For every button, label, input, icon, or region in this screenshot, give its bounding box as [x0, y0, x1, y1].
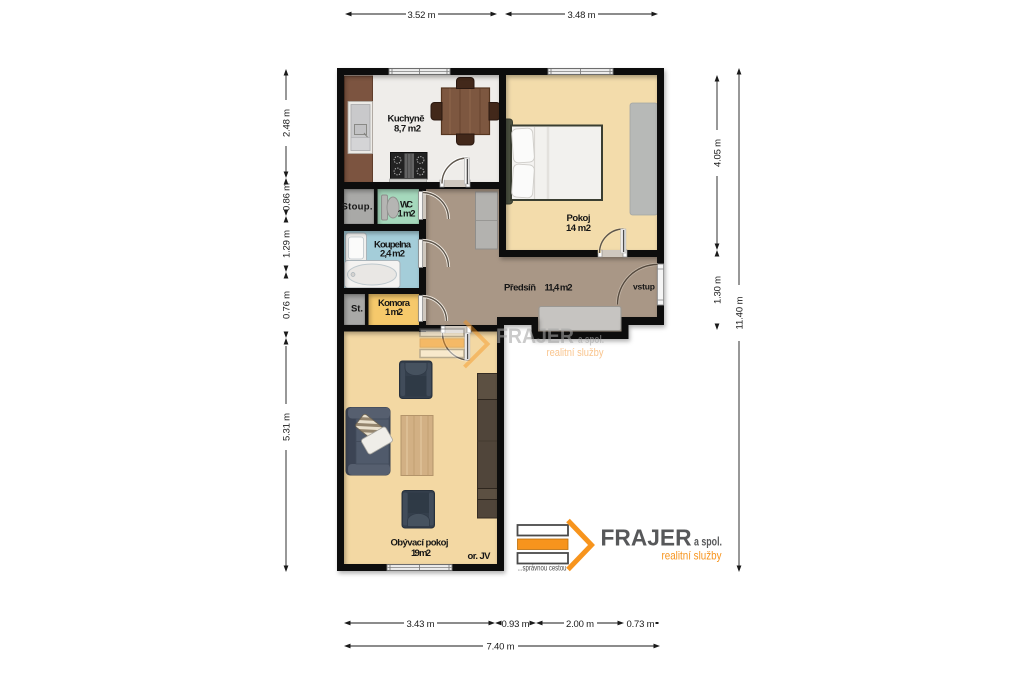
- svg-text:14 m2: 14 m2: [566, 223, 591, 234]
- svg-text:or. JV: or. JV: [468, 551, 492, 562]
- svg-text:8,7 m2: 8,7 m2: [394, 124, 421, 135]
- svg-text:Obývací pokoj: Obývací pokoj: [391, 538, 449, 549]
- svg-text:realitní služby: realitní služby: [547, 347, 604, 359]
- svg-text:0.93 m: 0.93 m: [502, 619, 530, 630]
- svg-text:1 m2: 1 m2: [398, 209, 416, 220]
- svg-text:vstup: vstup: [633, 282, 655, 292]
- svg-text:1.29 m: 1.29 m: [282, 230, 293, 258]
- svg-text:19 m2: 19 m2: [411, 548, 431, 559]
- svg-text:1 m2: 1 m2: [385, 307, 403, 318]
- svg-text:FRAJER: FRAJER: [496, 325, 574, 348]
- svg-text:11.40 m: 11.40 m: [735, 296, 746, 329]
- svg-text:3.48 m: 3.48 m: [568, 10, 596, 21]
- svg-text:St.: St.: [351, 304, 363, 315]
- svg-text:FRAJER: FRAJER: [601, 525, 692, 551]
- svg-text:Předsíň: Předsíň: [504, 283, 536, 294]
- svg-text:0.76 m: 0.76 m: [282, 291, 293, 319]
- svg-text:5.31 m: 5.31 m: [282, 413, 293, 441]
- svg-text:7.40 m: 7.40 m: [487, 642, 515, 653]
- svg-text:0.86 m: 0.86 m: [282, 183, 293, 211]
- svg-text:3.43 m: 3.43 m: [407, 619, 435, 630]
- svg-text:a spol.: a spol.: [578, 334, 604, 346]
- svg-text:0.73 m: 0.73 m: [627, 619, 655, 630]
- svg-text:realitní služby: realitní služby: [662, 549, 722, 563]
- svg-text:3.52 m: 3.52 m: [408, 10, 436, 21]
- svg-text:2.00 m: 2.00 m: [566, 619, 594, 630]
- svg-text:Stoup.: Stoup.: [342, 202, 373, 213]
- svg-text:11,4 m2: 11,4 m2: [545, 283, 573, 294]
- svg-text:2,4 m2: 2,4 m2: [380, 249, 405, 260]
- svg-text:4.05 m: 4.05 m: [713, 139, 724, 167]
- svg-text:a spol.: a spol.: [694, 535, 722, 549]
- svg-text:1.30 m: 1.30 m: [713, 276, 724, 304]
- svg-text:...správnou cestou: ...správnou cestou: [518, 564, 567, 573]
- svg-text:2.48 m: 2.48 m: [282, 109, 293, 137]
